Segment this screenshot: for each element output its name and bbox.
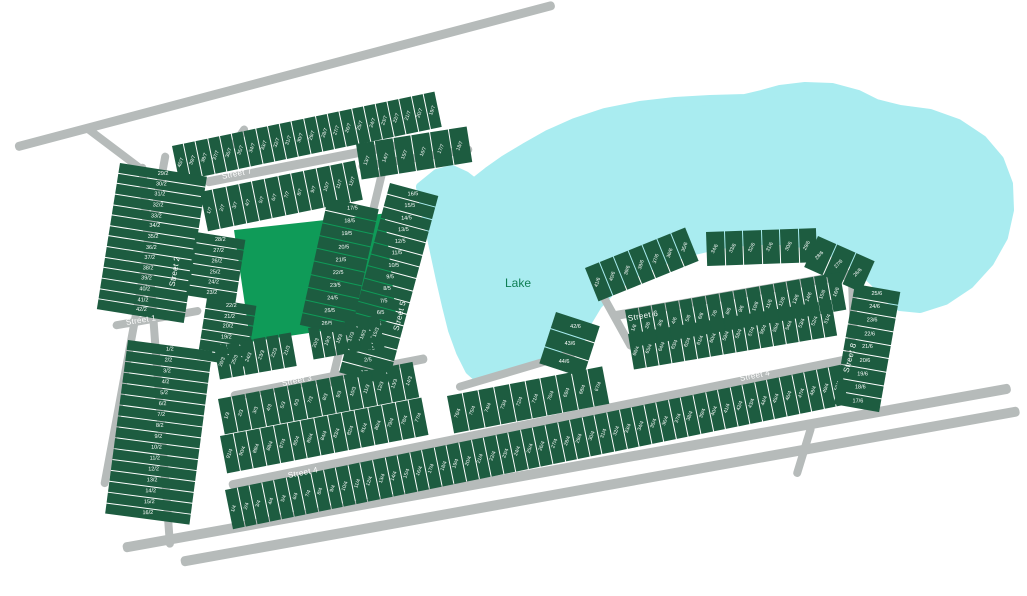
lot-30-6[interactable]: 30/6 [780,229,799,264]
lot-33-6[interactable]: 33/6 [724,231,743,266]
lake-label: Lake [505,276,531,290]
lot-block-s6-outer-arc-n: 34/633/632/631/630/629/6 [706,228,817,266]
lot-block-s2-east-a: 28/227/226/225/224/223/2 [186,232,245,303]
lot-34-6[interactable]: 34/6 [706,231,725,266]
lot-32-6[interactable]: 32/6 [743,230,762,265]
site-plan-map: Lake 40/739/738/737/736/735/734/733/732/… [0,0,1027,596]
lot-31-6[interactable]: 31/6 [761,229,780,264]
